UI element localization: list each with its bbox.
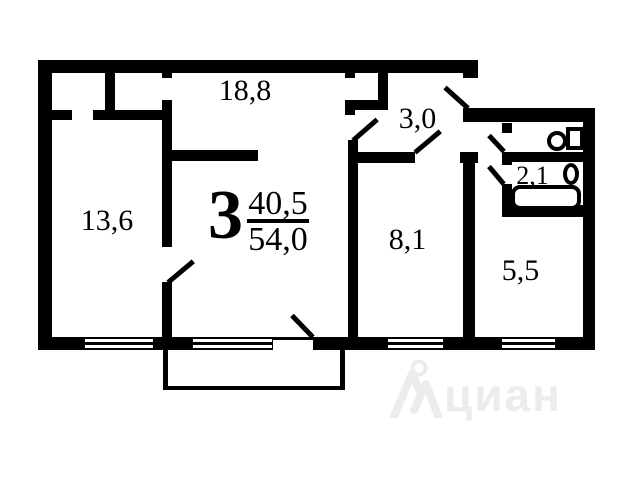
cian-logo-icon bbox=[388, 360, 444, 418]
door-leaf-balcony bbox=[290, 314, 314, 339]
wall-stub-top-right bbox=[463, 73, 478, 78]
wall-outer-top bbox=[38, 60, 478, 73]
wall-center-stub bbox=[168, 150, 258, 161]
window-mullion bbox=[502, 342, 555, 345]
wall-outer-right bbox=[583, 108, 595, 350]
room-label-room81: 8,1 bbox=[370, 223, 445, 257]
sink-icon bbox=[563, 163, 579, 185]
area-fraction: 40,5 54,0 bbox=[247, 188, 309, 255]
window-mullion bbox=[388, 342, 443, 345]
window-living-room bbox=[193, 339, 272, 348]
wall-room81-kitchen bbox=[463, 152, 475, 337]
wall-room81-top bbox=[348, 152, 415, 163]
door-leaf-wc bbox=[487, 134, 506, 153]
floor-plan: 18,8 3,0 13,6 8,1 5,5 2,1 3 40,5 54,0 ци… bbox=[0, 0, 640, 480]
toilet-tank-icon bbox=[566, 127, 584, 150]
apartment-designation: 3 40,5 54,0 bbox=[208, 188, 309, 255]
window-left-room bbox=[85, 339, 153, 348]
wall-outer-left bbox=[38, 60, 52, 350]
door-leaf-bathroom bbox=[487, 165, 506, 186]
balcony-door-opening bbox=[273, 340, 313, 350]
balcony-front-edge bbox=[163, 386, 345, 390]
room-label-hallway: 3,0 bbox=[380, 102, 455, 136]
room-label-bathroom: 2,1 bbox=[505, 162, 560, 190]
watermark: циан bbox=[388, 360, 562, 418]
room-label-kitchen: 5,5 bbox=[483, 254, 558, 288]
window-kitchen bbox=[502, 339, 555, 348]
window-mullion bbox=[193, 342, 272, 345]
wall-bath-block-top bbox=[463, 108, 595, 122]
toilet-icon bbox=[547, 131, 567, 151]
wall-closet-divider bbox=[105, 73, 115, 110]
wall-closet-bottom-right bbox=[93, 110, 170, 120]
door-leaf-left-room bbox=[166, 259, 194, 284]
living-area: 40,5 bbox=[247, 188, 309, 223]
wall-closet-bottom-left bbox=[52, 110, 72, 120]
wall-room81-left bbox=[348, 163, 358, 337]
balcony-left-edge bbox=[163, 350, 168, 390]
wall-hall-closet-bottom bbox=[355, 100, 378, 110]
balcony-right-edge bbox=[340, 350, 345, 390]
room-label-left: 13,6 bbox=[62, 204, 152, 238]
total-area: 54,0 bbox=[247, 223, 309, 255]
watermark-text: циан bbox=[444, 372, 562, 418]
door-leaf-living-hall bbox=[351, 118, 378, 143]
wall-wc-left-stub bbox=[502, 123, 512, 133]
window-mullion bbox=[85, 342, 153, 345]
wall-left-room-upper bbox=[162, 100, 172, 247]
wall-left-room-lower bbox=[162, 282, 172, 337]
wall-left-room-stub bbox=[162, 73, 172, 78]
window-room81 bbox=[388, 339, 443, 348]
room-label-living: 18,8 bbox=[200, 74, 290, 108]
wall-hall-closet-left bbox=[345, 100, 355, 115]
rooms-count: 3 bbox=[208, 188, 243, 244]
wall-hall-closet-stub bbox=[345, 73, 355, 78]
